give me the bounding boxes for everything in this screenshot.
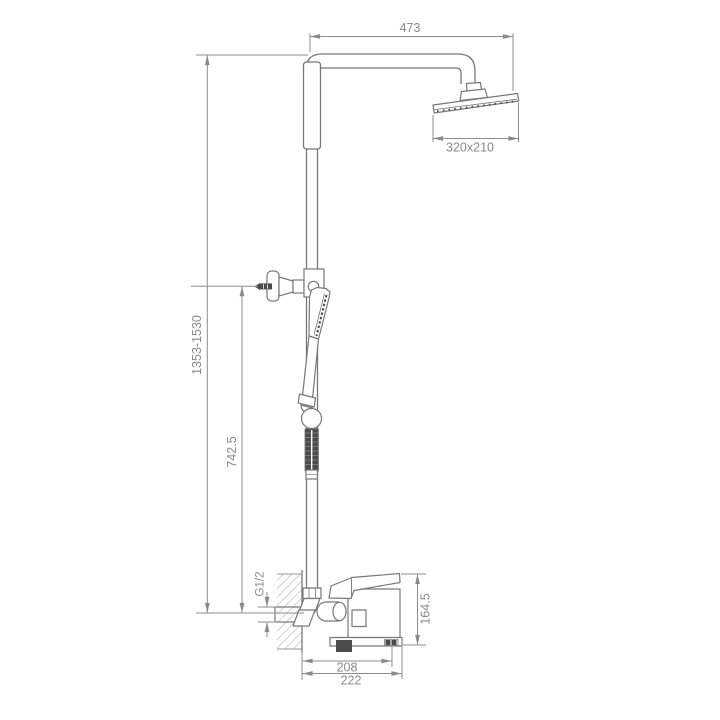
dim-column-height [196,55,308,613]
dim-label-mixer-height: 164.5 [419,593,433,624]
overhead-shower-head [433,83,519,114]
shower-system-diagram: 473 320x210 1353-1530 742.5 G1/2 164.5 [0,0,720,720]
bracket-cone [279,277,293,296]
dim-label-spout-reach: 208 [337,661,358,675]
mixer-diverter-knob [352,610,366,627]
dim-label-inlet-thread: G1/2 [255,572,267,597]
dim-label-column-height: 1353-1530 [190,315,204,375]
dim-label-arm-width: 473 [400,21,421,35]
technical-drawing-page: 473 320x210 1353-1530 742.5 G1/2 164.5 [0,0,720,720]
dim-label-bracket-height: 742.5 [225,436,239,467]
bath-mixer [293,574,402,653]
bracket-collar [293,280,304,293]
spout-underblock [336,640,352,652]
dim-inlet-thread [258,592,277,637]
dim-label-overall-reach: 222 [341,674,362,688]
mixer-hex-nut [303,588,321,599]
hand-shower-handle [303,336,319,399]
dim-arm-width [310,34,513,92]
hose-ring [302,409,322,429]
riser-pipe [304,54,476,588]
hose-assembly [302,409,322,480]
dim-label-head-size: 320x210 [446,141,494,155]
hand-shower [298,288,330,413]
spout-aerator [386,640,391,645]
